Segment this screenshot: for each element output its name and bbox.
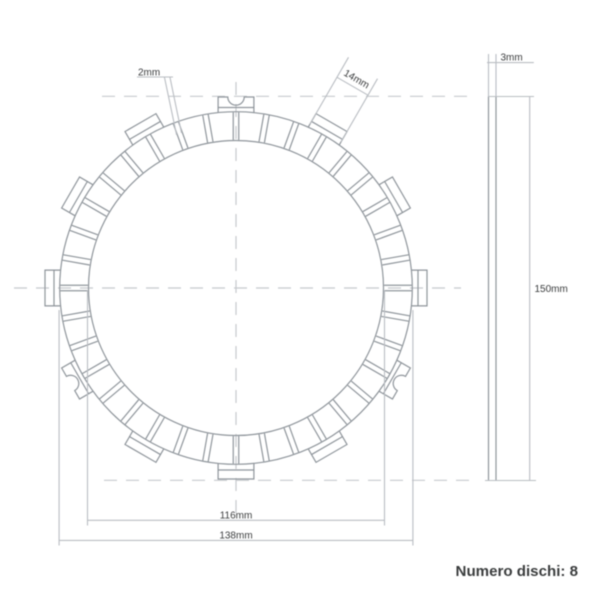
svg-text:116mm: 116mm: [220, 511, 253, 522]
svg-text:3mm: 3mm: [501, 53, 523, 64]
svg-text:Numero dischi: 8: Numero dischi: 8: [456, 563, 578, 580]
svg-text:2mm: 2mm: [138, 68, 160, 79]
svg-text:150mm: 150mm: [535, 284, 568, 295]
svg-text:138mm: 138mm: [219, 531, 252, 542]
